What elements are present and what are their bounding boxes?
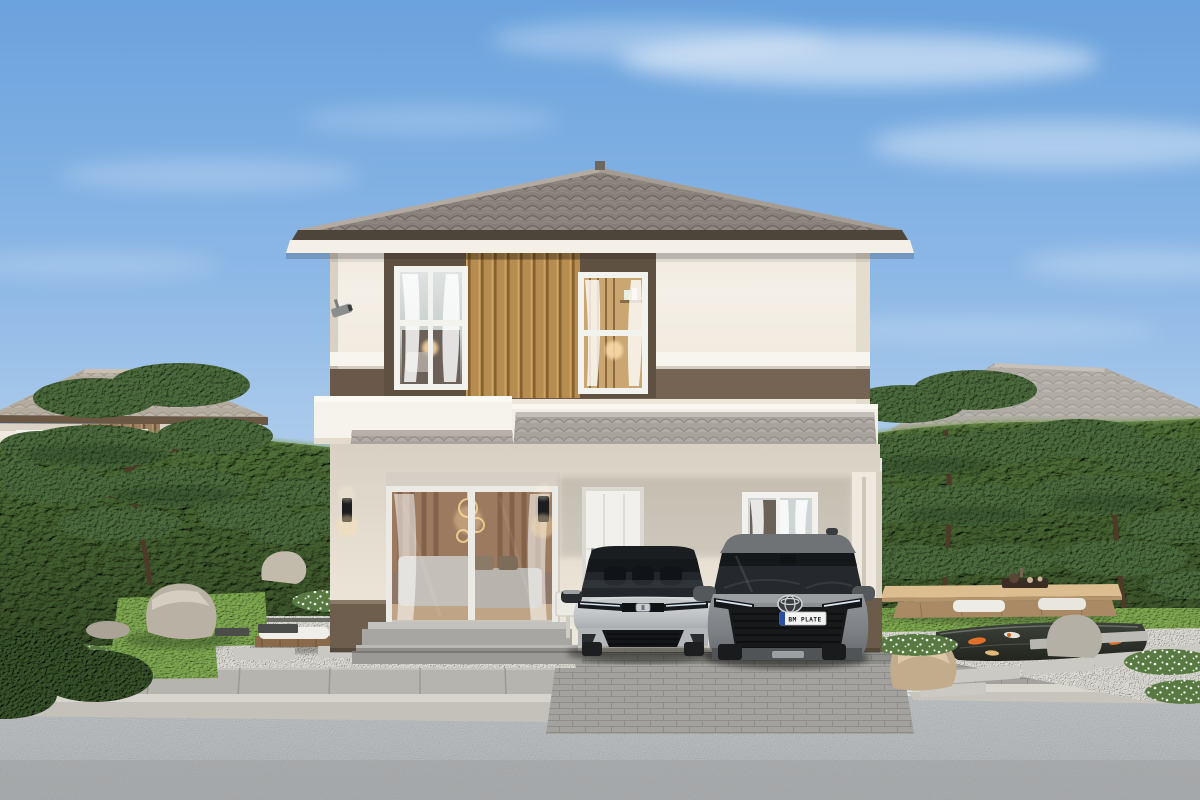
cushion xyxy=(1038,598,1086,610)
suv-roof xyxy=(720,534,856,553)
wall-molding-left xyxy=(330,352,385,366)
honda-emblem-icon xyxy=(636,604,650,612)
sedan-windshield xyxy=(580,559,706,597)
rendered-scene: BM PLATE xyxy=(0,0,1200,800)
sedan-mirror-left xyxy=(561,590,582,603)
wall-molding-right xyxy=(655,352,870,366)
upper-window-left xyxy=(394,266,468,390)
upper-window-right xyxy=(578,272,648,394)
toyota-emblem-icon xyxy=(778,596,802,613)
license-plate: BM PLATE xyxy=(780,612,826,625)
eave-fascia xyxy=(286,240,914,253)
sliding-glass-door xyxy=(386,486,558,630)
cushion xyxy=(953,600,1005,612)
license-plate-text: BM PLATE xyxy=(788,616,821,624)
entry-steps xyxy=(352,622,582,664)
gutter xyxy=(292,230,908,240)
suv-windshield xyxy=(713,553,863,594)
wood-slat-panel xyxy=(466,252,580,398)
